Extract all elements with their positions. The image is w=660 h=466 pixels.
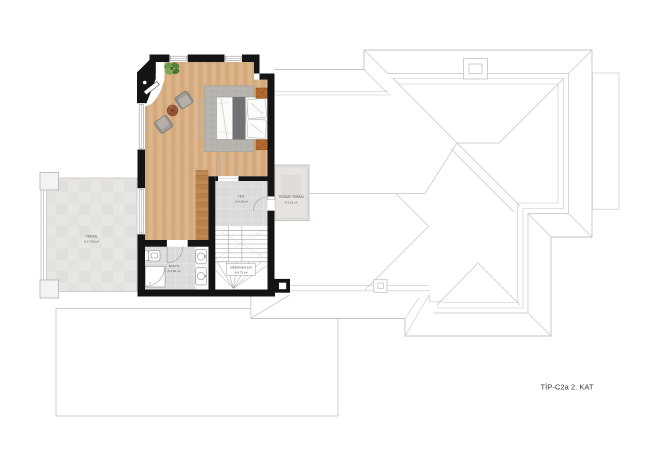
svg-text:TİP-C2a 2. KAT: TİP-C2a 2. KAT	[541, 383, 594, 392]
svg-text:A:17.83 m²: A:17.83 m²	[84, 240, 99, 244]
svg-text:A:9.72 m²: A:9.72 m²	[234, 270, 247, 274]
svg-text:A:4.18 m²: A:4.18 m²	[235, 200, 248, 204]
svg-text:HOL: HOL	[238, 195, 245, 199]
svg-text:A:3.22 m²: A:3.22 m²	[284, 201, 297, 205]
svg-text:TERAS: TERAS	[86, 235, 98, 239]
svg-text:MERDİVEN EVİ: MERDİVEN EVİ	[230, 264, 252, 269]
svg-text:TESİSAT TERASI: TESİSAT TERASI	[278, 194, 303, 199]
svg-text:BANYO: BANYO	[169, 264, 180, 268]
svg-text:A:4.00 m²: A:4.00 m²	[167, 269, 180, 273]
